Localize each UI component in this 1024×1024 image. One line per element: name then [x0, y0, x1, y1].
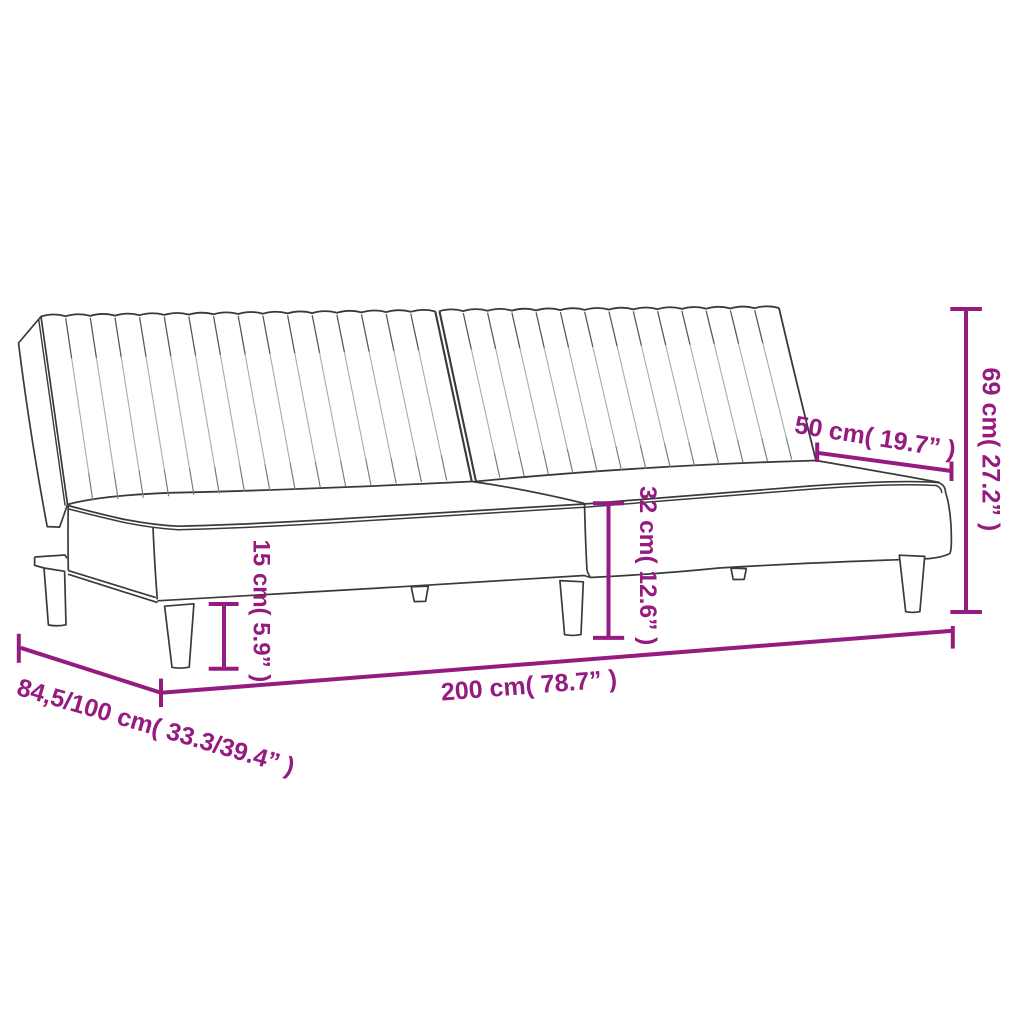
svg-text:69 cm( 27.2” ): 69 cm( 27.2” )	[976, 368, 1004, 532]
svg-text:32 cm( 12.6” ): 32 cm( 12.6” )	[634, 486, 661, 645]
svg-text:15 cm( 5.9” ): 15 cm( 5.9” )	[248, 540, 275, 683]
